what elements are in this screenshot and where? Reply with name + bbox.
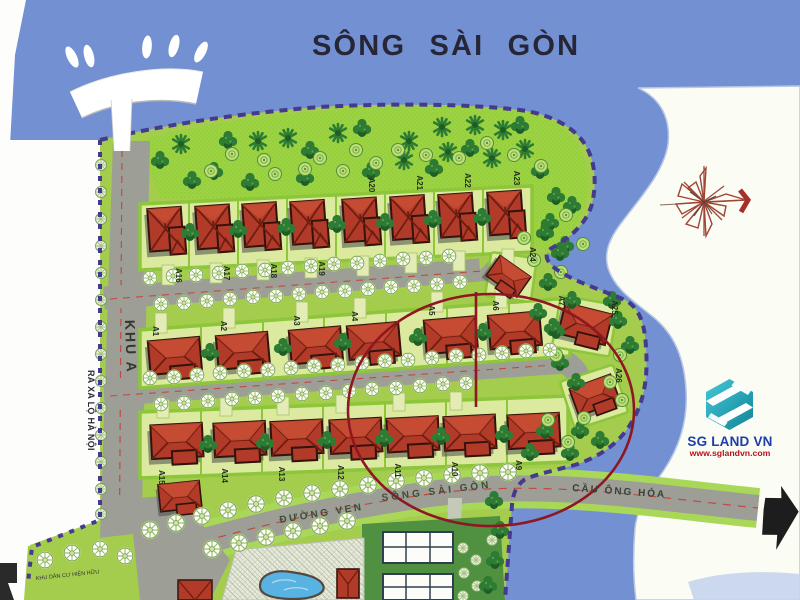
svg-text:A14: A14 bbox=[220, 468, 229, 483]
svg-text:A24: A24 bbox=[528, 247, 537, 262]
svg-text:A10: A10 bbox=[450, 462, 459, 477]
svg-text:A2: A2 bbox=[219, 321, 228, 332]
svg-text:A7: A7 bbox=[557, 296, 566, 307]
svg-text:A21: A21 bbox=[415, 175, 424, 190]
svg-text:A23: A23 bbox=[512, 171, 521, 186]
svg-text:A20: A20 bbox=[367, 178, 376, 193]
svg-text:A13: A13 bbox=[277, 467, 286, 482]
svg-text:A11: A11 bbox=[393, 463, 402, 478]
svg-text:A26: A26 bbox=[614, 368, 623, 383]
svg-text:A22: A22 bbox=[463, 173, 472, 188]
svg-text:A6: A6 bbox=[491, 301, 500, 312]
svg-text:A9: A9 bbox=[514, 460, 523, 471]
svg-text:A12: A12 bbox=[336, 465, 345, 480]
svg-text:A1: A1 bbox=[151, 326, 160, 337]
svg-text:A19: A19 bbox=[317, 261, 326, 276]
svg-text:A18: A18 bbox=[269, 263, 278, 278]
svg-text:www.sglandvn.com: www.sglandvn.com bbox=[689, 448, 771, 458]
svg-text:A16: A16 bbox=[174, 268, 183, 283]
svg-text:A17: A17 bbox=[222, 266, 231, 281]
svg-text:SG LAND VN: SG LAND VN bbox=[687, 434, 772, 449]
svg-text:A25: A25 bbox=[610, 300, 619, 315]
svg-text:A15: A15 bbox=[157, 470, 166, 485]
svg-text:SÔNG SÀI GÒN: SÔNG SÀI GÒN bbox=[312, 28, 580, 62]
svg-text:RA XA LỘ HÀ NỘI: RA XA LỘ HÀ NỘI bbox=[86, 370, 97, 451]
svg-text:A3: A3 bbox=[292, 315, 301, 326]
svg-text:A4: A4 bbox=[350, 311, 359, 322]
svg-text:KHU A: KHU A bbox=[122, 320, 140, 374]
